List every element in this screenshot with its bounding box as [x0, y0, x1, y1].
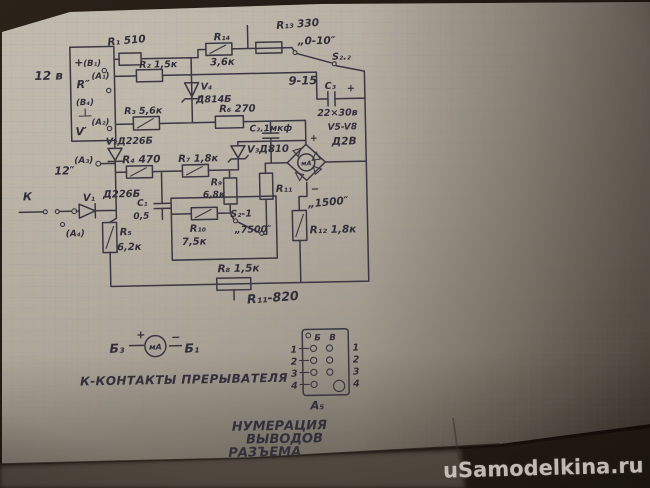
label-a2: (А₂) [91, 117, 109, 127]
label-v1: V₁ [83, 193, 95, 204]
label-v4: V₄ [201, 81, 213, 92]
connector-pin-right-2: 2 [353, 355, 360, 366]
label-a3: (А₃) [74, 156, 93, 166]
label-c3-plus: + [347, 83, 356, 94]
connector-pin-right-3: 3 [353, 367, 360, 378]
connector-pin-left-2: 2 [291, 357, 298, 368]
label-c3-val: 22×30в [317, 107, 358, 119]
label-r10-val: 7,5к [182, 236, 207, 248]
label-v5-v8: V5-V8 [327, 122, 357, 133]
label-a1: (А₁) [91, 71, 109, 81]
meter-label: мА [301, 159, 312, 167]
connector-pin-right-1: 1 [352, 343, 359, 354]
label-v2: V₂Д226Б [106, 136, 153, 148]
connector-header-b: Б [314, 333, 321, 343]
label-b1: (В₁) [83, 59, 101, 69]
label-v5-v8-type: Д2В [331, 135, 357, 148]
connector-pin-left-3: 3 [291, 369, 298, 380]
label-v-terminal: V′ [75, 125, 87, 138]
label-c1-val: 0,5 [133, 212, 149, 222]
label-r12: R₁₂ 1,8к [310, 223, 358, 236]
label-r10: R₁₀ [190, 223, 207, 234]
label-note-plus: + [136, 328, 145, 341]
label-b1-note: Б₁ [184, 340, 199, 355]
label-12-terminal: 12″ [54, 164, 75, 177]
label-r5-val: 6,2к [117, 242, 142, 254]
label-s21-val: „7500″ [234, 224, 273, 236]
label-note-minus: − [171, 331, 180, 344]
label-r7: R₇ 1,8к [178, 153, 218, 165]
label-r14: R₁₄ [214, 32, 231, 43]
label-r14-val: 3,6к [210, 57, 235, 69]
label-v1-type: Д226Б [102, 189, 141, 201]
label-r-terminal: R″ [76, 78, 90, 91]
label-supply-voltage: 12 в [34, 68, 63, 83]
connector-pin-right-4: 4 [352, 379, 360, 390]
label-b3: Б₃ [109, 341, 125, 356]
label-c3: С₃ [325, 81, 337, 92]
label-k-terminal: К [23, 190, 33, 203]
schematic-photo-canvas: мА 12 в + (В₁) R″ (А₁) (В₄) V′ (А₂) R₁ 5… [0, 0, 650, 488]
label-s21: S₂-1 [230, 209, 252, 220]
label-b4: (В₄) [76, 98, 94, 108]
label-a4: (А₄) [66, 229, 85, 239]
label-scale-9-15: 9-15 [288, 73, 317, 88]
label-r2: R₂ 1,5к [139, 59, 178, 71]
label-r9: R₉ [211, 177, 223, 188]
label-r11: R₁₁ [276, 184, 293, 195]
label-r3: R₃ 5,6к [124, 105, 163, 117]
label-note-meter: мА [149, 343, 162, 352]
label-r5: R₅ [120, 227, 132, 238]
label-r4: R₄ 470 [122, 153, 161, 166]
label-r6: R₆ 270 [219, 103, 256, 115]
pinout-title-line3: РАЗЪЕМА [228, 445, 301, 461]
label-s22: S₂.₂ [332, 51, 352, 62]
connector-header-v: В [329, 333, 336, 343]
label-r9-val: 6,8к [203, 190, 226, 200]
label-bridge-plus: + [310, 133, 318, 144]
label-bridge-minus: − [311, 184, 320, 195]
connector-pin-left-4: 4 [290, 381, 298, 392]
photo-of-notebook-schematic: мА 12 в + (В₁) R″ (А₁) (В₄) V′ (А₂) R₁ 5… [0, 0, 650, 488]
label-c2: С₂.1мкф [249, 124, 292, 135]
label-v3: V₃Д810 [247, 144, 289, 156]
connector-pin-left-1: 1 [290, 345, 297, 356]
label-plus: + [74, 56, 83, 69]
label-scale-0-10: „0-10″ [297, 35, 336, 48]
connector-bottom-label: А₅ [309, 398, 324, 412]
label-c1: С₁ [137, 199, 148, 209]
label-r8: R₈ 1,5к [217, 262, 260, 275]
